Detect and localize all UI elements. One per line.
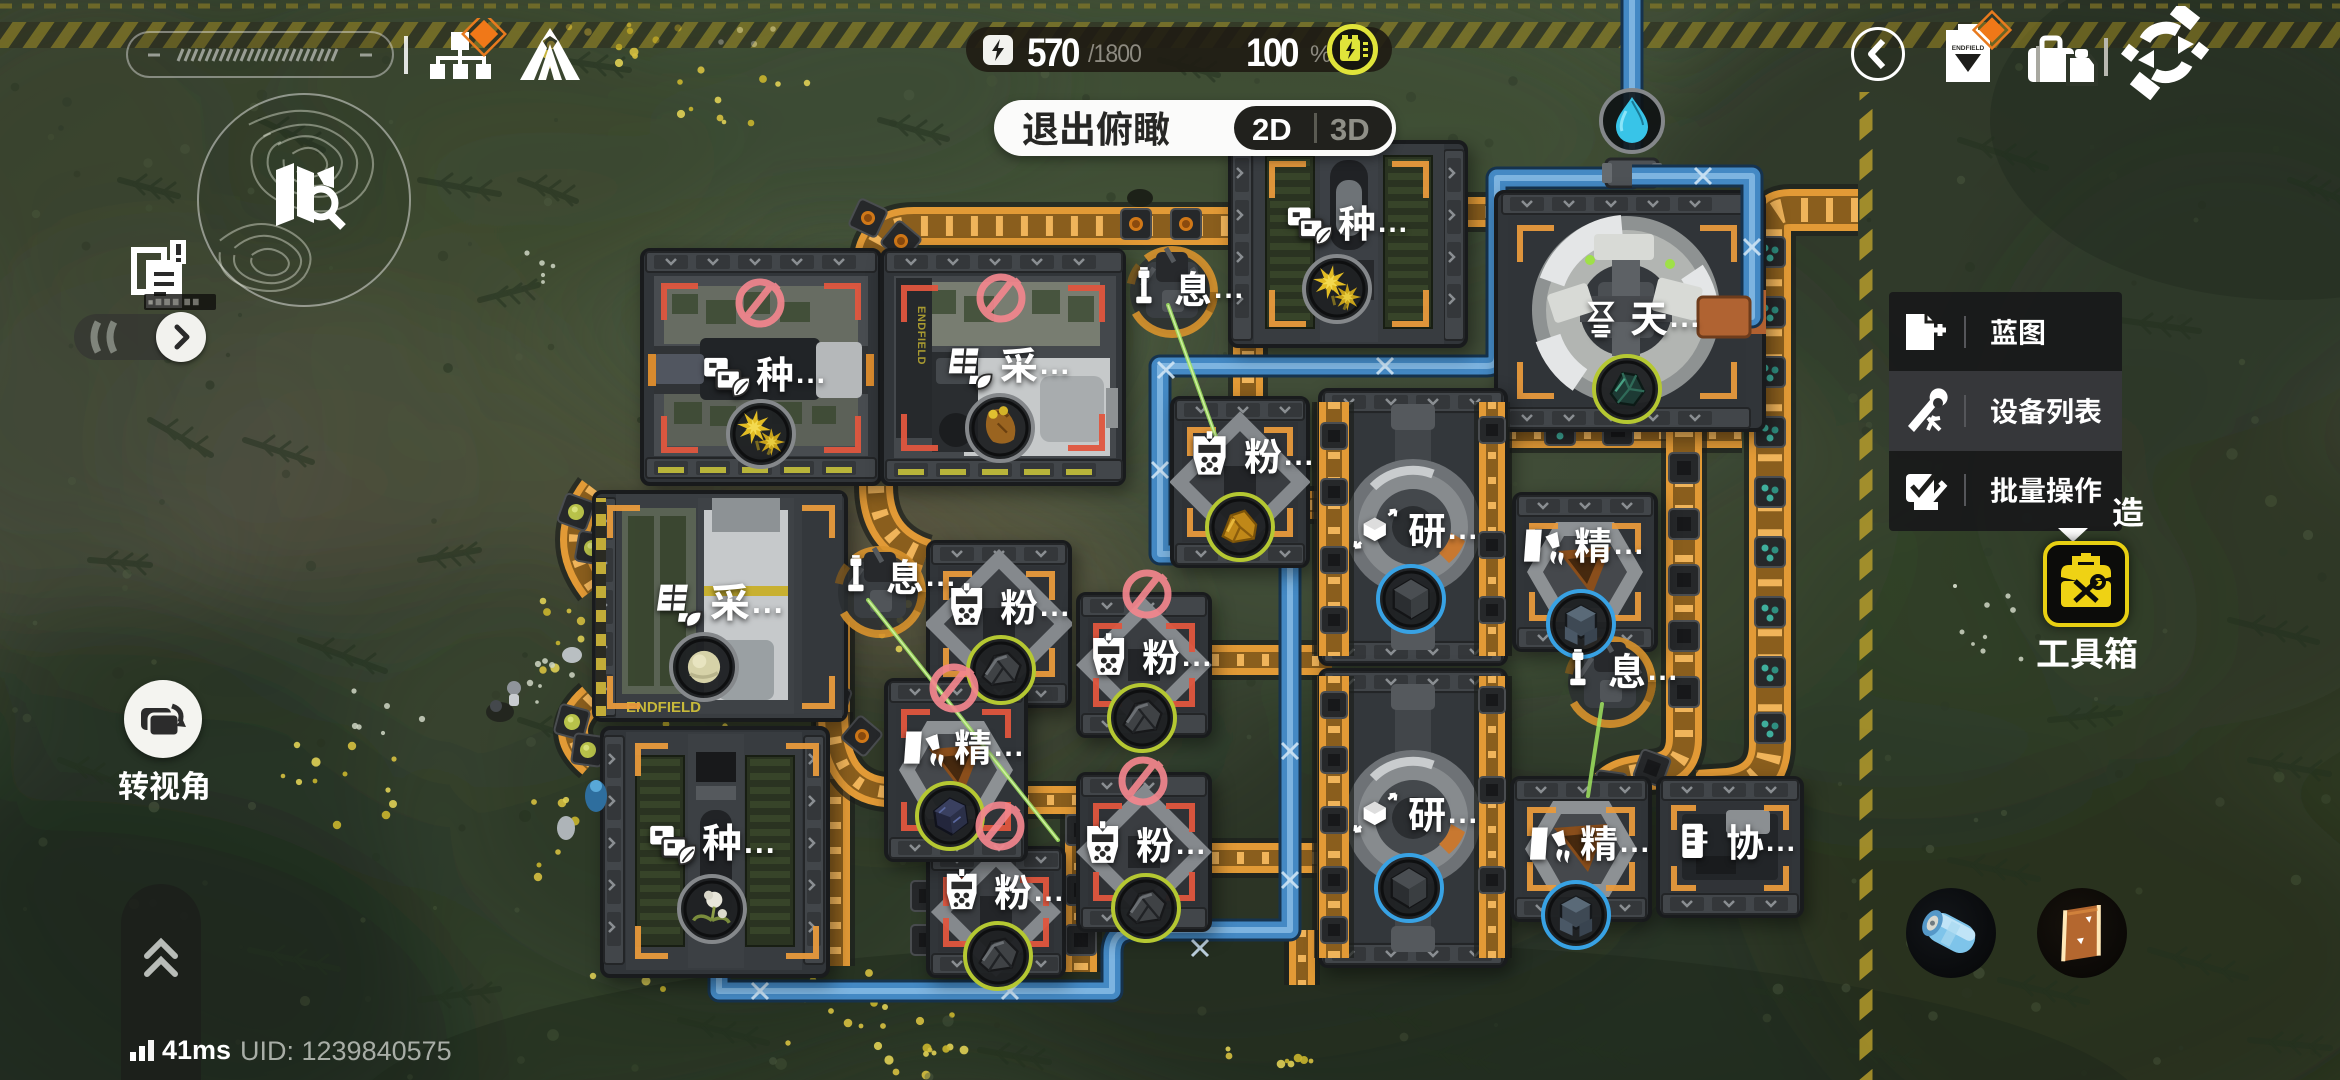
svg-text:ENDFIELD: ENDFIELD	[1952, 45, 1985, 52]
